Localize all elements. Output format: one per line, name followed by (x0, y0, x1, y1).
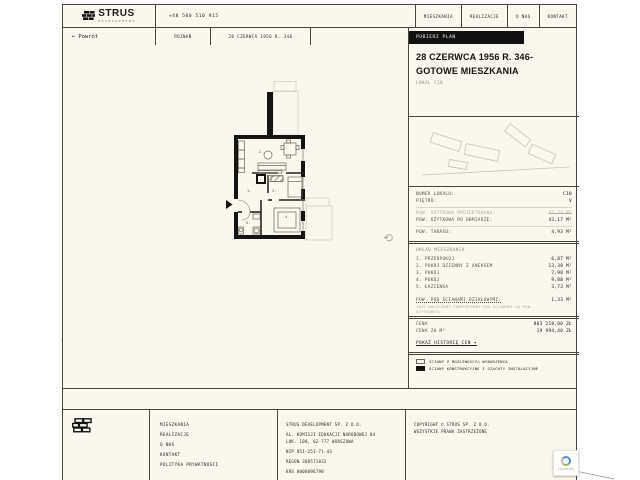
room-area: 7,98 M² (551, 271, 572, 276)
footer: MIESZKANIA REALIZACJE O NAS KONTAKT POLI… (63, 409, 576, 480)
room-row: 5. ŁAZIENKA 3,73 M² (416, 285, 572, 290)
unit-label: LOKAL C18 (416, 80, 443, 85)
legend-swatch-outline (416, 359, 425, 364)
footer-link-o-nas[interactable]: O NAS (160, 442, 277, 447)
detail-row-numer: NUMER LOKALU: C18 (416, 192, 572, 197)
room-area: 6,87 M² (551, 257, 572, 262)
detail-label: NUMER LOKALU: (416, 192, 454, 197)
room-row: 2. POKÓJ DZIENNY Z ANEKSEM 13,38 M² (416, 264, 572, 269)
detail-value: V (569, 199, 572, 204)
room-area: 9,88 M² (551, 278, 572, 283)
room-name: 4. POKÓJ (416, 278, 440, 283)
legend-label: ŚCIANY Z MOŻLIWOŚCIĄ WYBURZENIA (429, 359, 508, 364)
room-label-2: 2. (259, 150, 263, 154)
divider (409, 352, 579, 355)
download-plan-button[interactable]: POBIERZ PLAN (409, 31, 524, 44)
room-label-1: 1. (247, 189, 251, 193)
content-frame: STRUS DEVELOPMENT +48 500 510 915 MIESZK… (62, 4, 577, 480)
legend-label: ŚCIANY KONSTRUKCYJNE I SZACHTY INSTALACY… (429, 366, 538, 371)
detail-label: POW. UŻYTKOWA PROJEKTOWANA: (416, 211, 495, 216)
copyright-line2: WSZYSTKIE PRAWA ZASTRZEŻONE (414, 429, 576, 434)
logo[interactable]: STRUS DEVELOPMENT (63, 5, 156, 27)
footer-link-mieszkania[interactable]: MIESZKANIA (160, 422, 277, 427)
unit-title: 28 CZERWCA 1956 R. 346- GOTOWE MIESZKANI… (416, 50, 574, 78)
footer-company: STRUS DEVELOPMENT SP. Z O.O. AL. KOMISJI… (278, 410, 406, 480)
detail-value: C18 (563, 192, 572, 197)
company-krs: KRS 0000896790 (286, 469, 405, 474)
footer-link-realizacje[interactable]: REALIZACJE (160, 432, 277, 437)
company-name: STRUS DEVELOPMENT SP. Z O.O. (286, 422, 405, 427)
price-history-link[interactable]: POKAŻ HISTORIĘ CEN ▾ (416, 341, 477, 346)
walls-value: 1,33 M² (551, 298, 572, 303)
bricks-logo-icon (72, 418, 92, 435)
detail-value: 43,17 M² (548, 218, 572, 223)
site-plan-thumbnail[interactable] (409, 117, 579, 185)
room-label-3: 3. (272, 189, 276, 193)
bricks-logo-icon (82, 11, 95, 22)
detail-value: 43,74 M² (548, 211, 572, 216)
company-nip: NIP 951-251-71-43 (286, 449, 405, 454)
header-phone[interactable]: +48 500 510 915 (156, 5, 415, 27)
entrance-arrow (226, 200, 233, 209)
copyright-line1: COPYRIGHT © STRUS SP. Z O.O. (414, 422, 576, 427)
back-button[interactable]: ← Powrót (63, 28, 156, 45)
walls-row: POW. POD ŚCIANAMI DZIAŁOWYMI: 1,33 M² (416, 298, 572, 303)
breadcrumb-investment: 28 CZERWCA 1956 R. 346 (211, 28, 311, 45)
price-per-m2-row: CENA ZA M² 19 994,40 ZŁ (416, 329, 572, 334)
divider-faint (416, 226, 572, 227)
footer-logo-cell (63, 410, 150, 480)
footer-copyright: COPYRIGHT © STRUS SP. Z O.O. WSZYSTKIE P… (406, 410, 576, 480)
room-name: 1. PRZEDPOKÓJ (416, 257, 454, 262)
detail-row-pow-projektowana: POW. UŻYTKOWA PROJEKTOWANA: 43,74 M² (416, 211, 572, 216)
logo-name: STRUS (98, 9, 135, 19)
layout-section-header: UKŁAD MIESZKANIA (416, 248, 465, 253)
company-address-1: AL. KOMISJI EDUKACJI NARODOWEJ 84 (286, 432, 405, 437)
legend-item-demolition-walls: ŚCIANY Z MOŻLIWOŚCIĄ WYBURZENIA (416, 359, 576, 364)
price-value: 19 994,40 ZŁ (537, 329, 572, 334)
back-label: Powrót (78, 34, 98, 40)
room-row: 4. POKÓJ 9,88 M² (416, 278, 572, 283)
walls-note-line2: UŻYTKOWEJ) (416, 309, 572, 314)
recaptcha-icon (561, 456, 571, 466)
price-value: 863 218,00 ZŁ (534, 322, 572, 327)
price-label: CENA (416, 322, 428, 327)
company-regon: REGON 388571832 (286, 459, 405, 464)
detail-label: POW. TARASU: (416, 230, 451, 235)
footer-links: MIESZKANIA REALIZACJE O NAS KONTAKT POLI… (150, 410, 278, 480)
nav-item-kontakt[interactable]: KONTAKT (539, 5, 576, 27)
breadcrumb-city: POZNAŃ (156, 28, 211, 45)
footer-link-kontakt[interactable]: KONTAKT (160, 452, 277, 457)
header: STRUS DEVELOPMENT +48 500 510 915 MIESZK… (63, 5, 576, 27)
recaptcha-label: reCAPTCHA (558, 467, 574, 471)
nav-item-o-nas[interactable]: O NAS (507, 5, 539, 27)
room-area: 3,73 M² (551, 285, 572, 290)
detail-label: POW. UŻYTKOWA PO OBMIARZE: (416, 218, 493, 223)
detail-label: PIĘTRO: (416, 199, 437, 204)
room-area: 13,38 M² (548, 264, 572, 269)
room-label-5: 5. (246, 221, 250, 225)
legend-swatch-solid (416, 366, 425, 371)
walls-label: POW. POD ŚCIANAMI DZIAŁOWYMI: (416, 298, 501, 303)
page: STRUS DEVELOPMENT +48 500 510 915 MIESZK… (0, 0, 640, 480)
company-address-2: LOK. 108, 02-777 WARSZAWA (286, 439, 405, 444)
back-arrow-icon: ← (72, 34, 75, 40)
price-row: CENA 863 218,00 ZŁ (416, 322, 572, 327)
room-label-4: 4. (285, 215, 289, 219)
nav-item-mieszkania[interactable]: MIESZKANIA (415, 5, 461, 27)
divider (409, 186, 579, 187)
detail-row-pietro: PIĘTRO: V (416, 199, 572, 204)
detail-row-taras: POW. TARASU: 4,93 M² (416, 230, 572, 235)
room-row: 3. POKÓJ 7,98 M² (416, 271, 572, 276)
unit-sidebar: POBIERZ PLAN 28 CZERWCA 1956 R. 346- GOT… (408, 27, 578, 389)
floor-plan[interactable]: 1. 2. 3. 4. 5. (216, 81, 356, 241)
nav-item-realizacje[interactable]: REALIZACJE (461, 5, 507, 27)
price-label: CENA ZA M² (416, 329, 445, 334)
room-name: 2. POKÓJ DZIENNY Z ANEKSEM (416, 264, 493, 269)
detail-value: 4,93 M² (551, 230, 572, 235)
room-name: 3. POKÓJ (416, 271, 440, 276)
recaptcha-badge[interactable]: reCAPTCHA (553, 450, 579, 476)
footer-link-polityka[interactable]: POLITYKA PRYWATNOŚCI (160, 462, 277, 467)
divider-faint (416, 207, 572, 208)
room-row: 1. PRZEDPOKÓJ 6,87 M² (416, 257, 572, 262)
room-name: 5. ŁAZIENKA (416, 285, 448, 290)
detail-row-pow-obmiarze: POW. UŻYTKOWA PO OBMIARZE: 43,17 M² (416, 218, 572, 223)
logo-tagline: DEVELOPMENT (98, 20, 135, 23)
legend-item-structural-walls: ŚCIANY KONSTRUKCYJNE I SZACHTY INSTALACY… (416, 366, 576, 371)
rotate-plan-icon[interactable]: ⟲ (383, 231, 393, 245)
divider (409, 316, 579, 319)
divider (409, 241, 579, 244)
